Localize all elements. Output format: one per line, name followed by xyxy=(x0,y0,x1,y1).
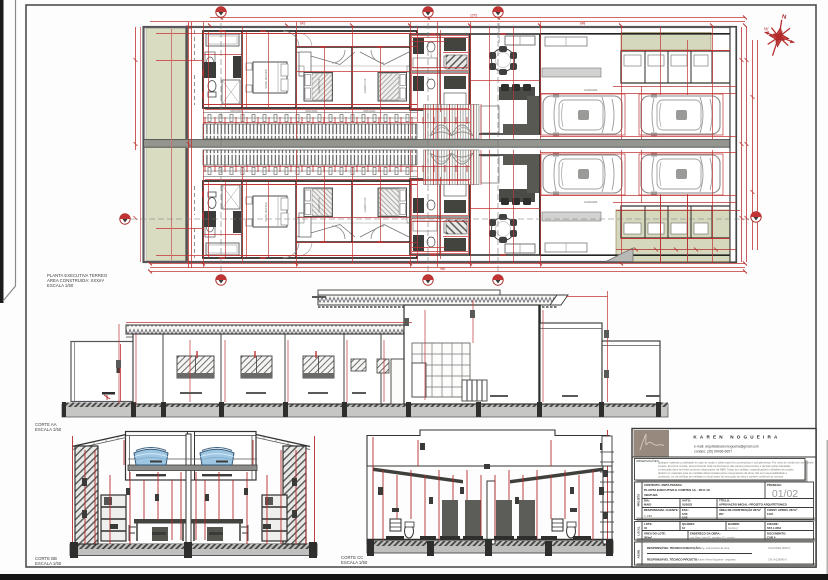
svg-text:VARANDA: VARANDA xyxy=(305,178,318,182)
svg-text:ÁREA DE CONSTRUÇÃO 267m²: ÁREA DE CONSTRUÇÃO 267m² xyxy=(719,507,761,512)
svg-text:960: 960 xyxy=(440,267,446,271)
svg-text:CAR 4: CAR 4 xyxy=(767,536,776,540)
svg-text:GARAGEM: GARAGEM xyxy=(584,88,597,92)
svg-text:01: 01 xyxy=(644,526,648,530)
svg-text:QUARTO 02: QUARTO 02 xyxy=(317,78,321,93)
svg-text:MAIO: MAIO xyxy=(644,503,652,507)
svg-text:LOCAL: LOCAL xyxy=(637,526,641,535)
svg-text:e-mail: arquitetakarennogueira: e-mail: arquitetakarennogueira@gmail.com xyxy=(694,445,759,449)
svg-text:1/50: 1/50 xyxy=(682,516,688,520)
svg-text:SUITE MASTER: SUITE MASTER xyxy=(264,202,268,221)
svg-text:VARANDA: VARANDA xyxy=(230,109,243,113)
svg-text:RESPONSÁVEL TÉCNICO PROJETO:: RESPONSÁVEL TÉCNICO PROJETO: xyxy=(647,557,698,562)
svg-text:contato: (35) 99436-6657: contato: (35) 99436-6657 xyxy=(694,450,732,454)
svg-text:RESPONSÁVEL TÉCNICO EXECUÇÃO:: RESPONSÁVEL TÉCNICO EXECUÇÃO: xyxy=(647,545,701,550)
svg-text:(centro): (centro) xyxy=(728,526,738,530)
svg-text:KAREN NOGUEIRA: KAREN NOGUEIRA xyxy=(693,435,780,440)
svg-text:PLANTA EXECUTIVA E CORTES 1A -: PLANTA EXECUTIVA E CORTES 1A - 1B E 1C xyxy=(644,488,711,492)
svg-text:843: 843 xyxy=(300,22,306,26)
svg-text:01/2023: 01/2023 xyxy=(682,503,693,507)
svg-text:1075: 1075 xyxy=(470,14,477,18)
svg-text:construtor, ou na verificar as: construtor, ou na verificar as medidas n… xyxy=(658,475,784,479)
svg-text:848: 848 xyxy=(580,22,586,26)
svg-text:GARAGEM: GARAGEM xyxy=(584,200,597,204)
svg-text:a execução deve ser feita co: a execução deve ser feita conforme dis… xyxy=(658,468,794,472)
svg-text:CONTRATO: ANITA PESSOA: CONTRATO: ANITA PESSOA xyxy=(644,483,682,487)
svg-text:qualquer material ou atividade: qualquer material ou atividade em que se… xyxy=(658,461,814,465)
svg-text:01/02: 01/02 xyxy=(772,488,798,500)
svg-text:QUARTO 03: QUARTO 03 xyxy=(363,197,367,212)
svg-text:SUITE MASTER: SUITE MASTER xyxy=(264,69,268,88)
svg-text:rua Sete, lote 01, quadra 12 -: rua Sete, lote 01, quadra 12 - centro xyxy=(690,536,735,540)
svg-text:ESCALA 1/50: ESCALA 1/50 xyxy=(35,427,62,432)
svg-text:ESCALA 1/50: ESCALA 1/50 xyxy=(35,561,62,566)
svg-text:deduzir os materiais para as m: deduzir os materiais para as medidas det… xyxy=(658,471,788,475)
svg-text:VARANDA: VARANDA xyxy=(230,178,243,182)
svg-text:VARANDA: VARANDA xyxy=(363,178,376,182)
svg-text:QUARTO 03: QUARTO 03 xyxy=(363,78,367,93)
svg-text:ESCALA 1/50: ESCALA 1/50 xyxy=(47,283,74,288)
svg-text:300m²: 300m² xyxy=(644,536,652,540)
svg-text:CAU A128545-0: CAU A128545-0 xyxy=(768,558,787,562)
svg-text:WC: WC xyxy=(431,53,433,57)
svg-text:PRANCHA:: PRANCHA: xyxy=(767,483,782,487)
svg-text:VARANDA: VARANDA xyxy=(363,109,376,113)
svg-text:RESPONSAVEL CLIENTE:: RESPONSAVEL CLIENTE: xyxy=(644,508,679,512)
svg-text:APROVAÇÃO INICIAL- PROJETO ARQ: APROVAÇÃO INICIAL- PROJETO ARQUITETONICO xyxy=(719,502,788,507)
svg-text:267: 267 xyxy=(719,512,724,516)
svg-text:projeto, de forma correta, dem: projeto, de forma correta, demonstrando … xyxy=(658,464,791,468)
svg-text:Karen Alves Nogueira - arquite: Karen Alves Nogueira - arquiteta xyxy=(698,558,736,562)
svg-text:VARANDA: VARANDA xyxy=(305,109,318,113)
svg-text:eng. responsável da obra: eng. responsável da obra xyxy=(700,546,730,550)
svg-text:OBSERVAÇÕES:: OBSERVAÇÕES: xyxy=(636,458,660,463)
svg-text:A. PES: A. PES xyxy=(644,515,652,518)
svg-text:STA LUZIA: STA LUZIA xyxy=(767,526,781,530)
svg-text:SALA DE JANTAR: SALA DE JANTAR xyxy=(498,23,501,43)
svg-text:ASSIN.: ASSIN. xyxy=(637,549,641,558)
svg-text:QUARTO 02: QUARTO 02 xyxy=(317,197,321,212)
svg-text:PROJETO: PROJETO xyxy=(637,494,641,506)
svg-text:N: N xyxy=(781,14,786,21)
svg-text:ESCALA 1/50: ESCALA 1/50 xyxy=(341,560,368,565)
svg-text:CAU/CREA 0000-0: CAU/CREA 0000-0 xyxy=(768,546,791,550)
svg-text:12: 12 xyxy=(682,526,686,530)
svg-text:UBATUBA: UBATUBA xyxy=(644,493,658,497)
svg-text:1137: 1137 xyxy=(767,512,774,516)
